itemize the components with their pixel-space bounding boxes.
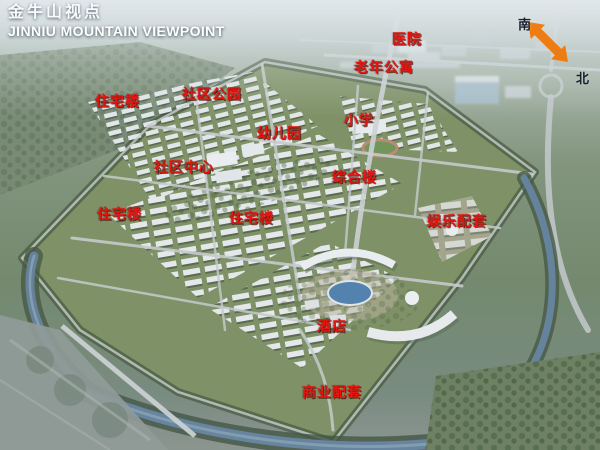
page-title: 金牛山视点 JINNIU MOUNTAIN VIEWPOINT	[8, 3, 225, 41]
viewpoint-slide: 金牛山视点 JINNIU MOUNTAIN VIEWPOINT 南 北 医院老年…	[0, 0, 600, 450]
compass: 南 北	[512, 6, 600, 92]
title-chinese: 金牛山视点	[8, 3, 225, 23]
compass-arrow-shape	[528, 22, 568, 62]
compass-south-label: 南	[518, 14, 531, 33]
aerial-rendering	[0, 0, 600, 450]
compass-north-label: 北	[576, 68, 589, 87]
title-english: JINNIU MOUNTAIN VIEWPOINT	[8, 23, 225, 41]
atmosphere-tint	[0, 0, 600, 450]
